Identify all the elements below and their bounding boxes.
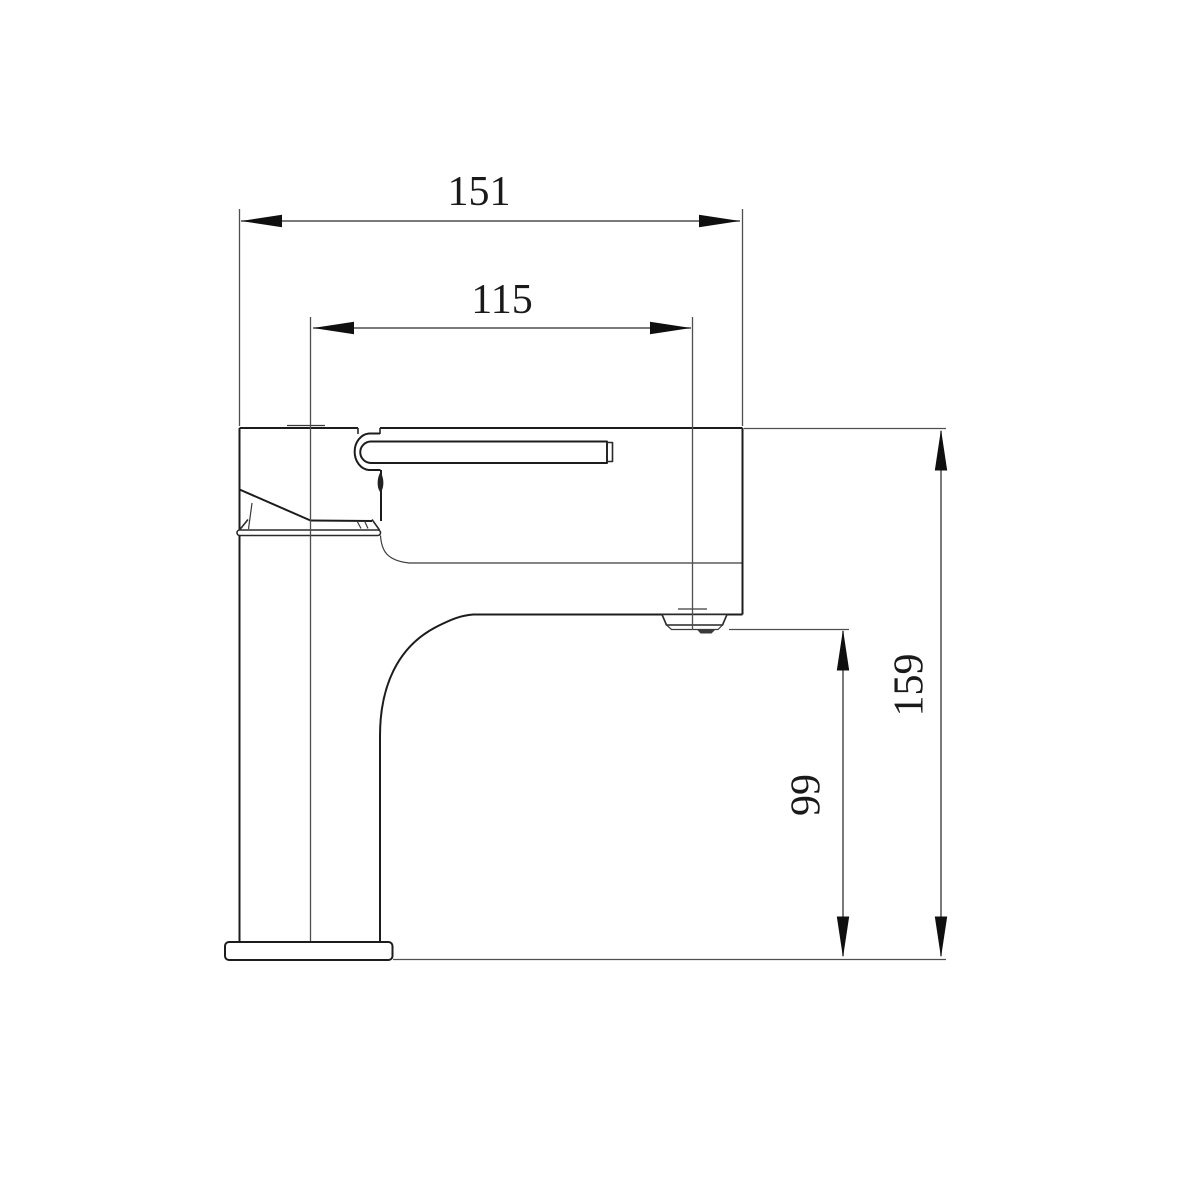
arrowhead-up-icon	[837, 630, 849, 671]
set-screw-detail	[378, 472, 384, 493]
dimension-spout-height: 99	[729, 630, 849, 958]
faucet-outline	[225, 426, 743, 961]
aerator-outlet-tab	[697, 630, 716, 634]
arrowhead-up-icon	[935, 430, 947, 471]
dimension-value-99: 99	[784, 774, 830, 816]
collar-ticks	[357, 521, 368, 529]
faucet-dimension-drawing: 151 115 159 99	[0, 0, 1200, 1200]
arrowhead-down-icon	[935, 917, 947, 958]
aerator-body	[662, 615, 727, 626]
spout-underside-seam	[381, 536, 743, 564]
dimension-value-159: 159	[887, 654, 933, 717]
arrowhead-down-icon	[837, 917, 849, 958]
base-plate	[225, 942, 393, 960]
body-chamfer-inner-edge	[249, 503, 253, 529]
arrowhead-right-icon	[699, 215, 740, 227]
handle-lever	[360, 442, 607, 464]
dimension-width-to-spout: 115	[311, 277, 693, 941]
arrowhead-left-icon	[241, 215, 282, 227]
technical-drawing-page: 151 115 159 99	[0, 0, 1200, 1200]
spout-underside-profile	[380, 615, 743, 943]
collar-flange	[237, 530, 381, 536]
arrowhead-left-icon	[313, 322, 354, 334]
dimension-value-151: 151	[448, 169, 511, 215]
body-bottom-edge	[311, 521, 373, 522]
dimension-value-115: 115	[471, 277, 532, 323]
dimension-height-overall: 159	[393, 429, 947, 960]
arrowhead-right-icon	[650, 322, 691, 334]
